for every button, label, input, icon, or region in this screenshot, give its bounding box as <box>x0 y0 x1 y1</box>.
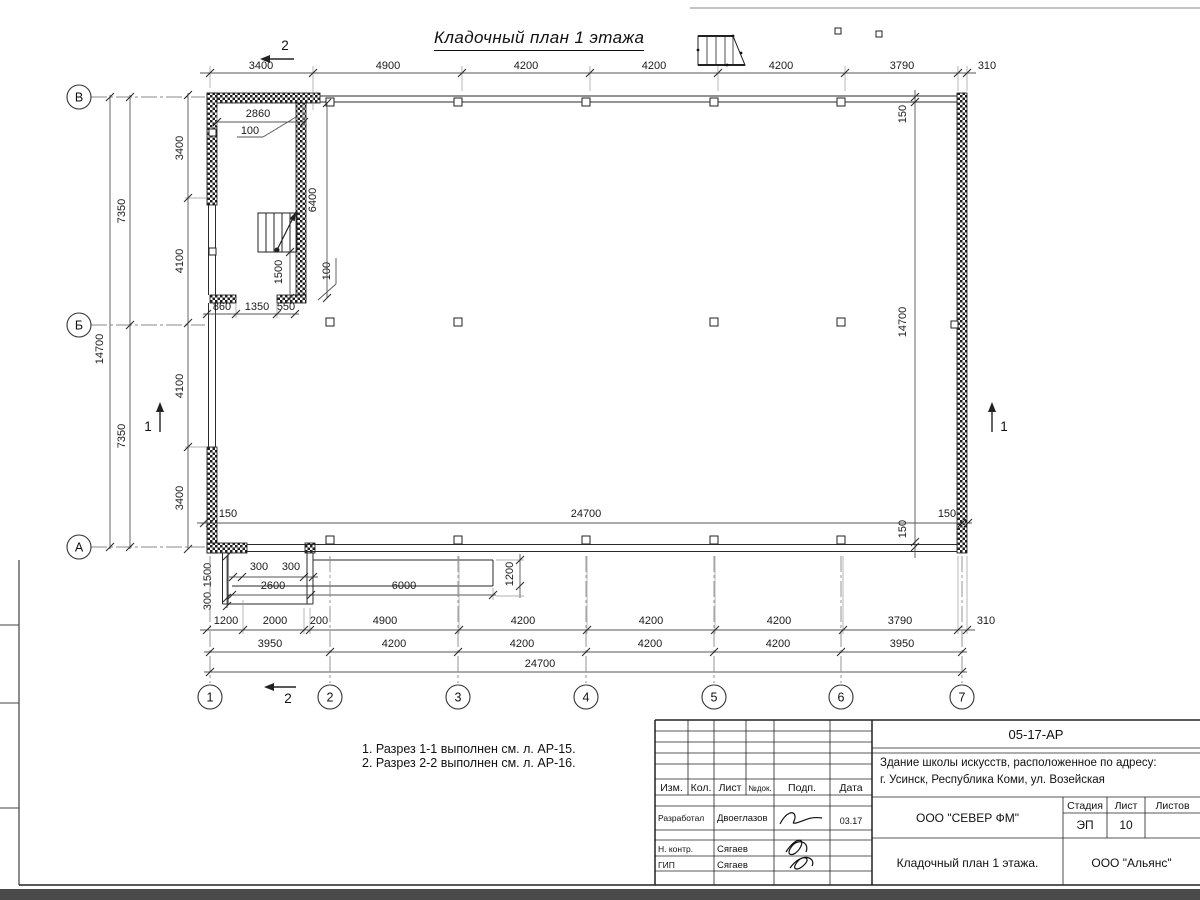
dim-label: 310 <box>978 60 996 72</box>
dim-label: 1500 <box>273 260 285 284</box>
dim-label: 3400 <box>174 486 186 510</box>
scan-edge-strip <box>0 889 1200 900</box>
masonry-walls <box>207 93 967 553</box>
dim-label: 1200 <box>504 562 516 586</box>
dim-label: 1500 <box>202 563 214 587</box>
dim-label: 300 <box>202 592 214 610</box>
dim-label: 7350 <box>116 199 128 223</box>
dim-label: 4200 <box>639 615 663 627</box>
dim-label: 14700 <box>94 334 106 365</box>
dim-label: 4200 <box>382 638 406 650</box>
project-address-line1: Здание школы искусств, расположенное по … <box>880 756 1196 770</box>
axis-label: Б <box>75 319 83 333</box>
sheet-number: 10 <box>1107 816 1145 834</box>
axis-label: 5 <box>711 691 718 705</box>
section-marks <box>156 55 996 691</box>
dim-label: 860 <box>213 301 231 313</box>
organization-2: ООО "Альянс" <box>1063 853 1200 873</box>
name-ncontr: Сягаев <box>717 843 773 855</box>
col-kol: Кол. <box>688 781 714 795</box>
date-developer: 03.17 <box>832 815 870 826</box>
axis-label: 4 <box>583 691 590 705</box>
dim-label: 4200 <box>514 60 538 72</box>
axis-label: 3 <box>455 691 462 705</box>
doc-code: 05-17-АР <box>872 724 1200 744</box>
dim-label: 4200 <box>510 638 534 650</box>
col-data: Дата <box>830 781 872 795</box>
sheets-label: Листов <box>1145 799 1200 812</box>
dim-label: 6400 <box>307 188 319 212</box>
signature-icon <box>780 813 822 869</box>
role-ncontr: Н. контр. <box>658 843 713 855</box>
dim-label: 150 <box>897 520 909 538</box>
drawing-name: Кладочный план 1 этажа. <box>872 853 1063 873</box>
dim-label: 2000 <box>263 615 287 627</box>
dim-label: 3790 <box>888 615 912 627</box>
stage-label: Стадия <box>1063 799 1107 812</box>
plan-title: Кладочный план 1 этажа <box>434 28 644 51</box>
note-line-2: 2. Разрез 2-2 выполнен см. л. АР-16. <box>362 756 576 770</box>
dim-label: 3950 <box>890 638 914 650</box>
canopy-symbol <box>697 35 745 67</box>
col-izm: Изм. <box>655 781 688 795</box>
dim-label: 2600 <box>261 580 285 592</box>
dim-label: 3950 <box>258 638 282 650</box>
section-label: 2 <box>281 38 289 53</box>
notes: 1. Разрез 1-1 выполнен см. л. АР-15. 2. … <box>362 742 576 771</box>
section-label: 2 <box>284 691 292 706</box>
dim-label: 3400 <box>174 136 186 160</box>
axis-label: 2 <box>327 691 334 705</box>
dim-label: 2860 <box>246 108 270 120</box>
drawing-sheet: 3400490042004200420037903102860100640015… <box>0 0 1200 900</box>
name-gip: Сягаев <box>717 859 773 871</box>
dim-label: 100 <box>321 262 333 280</box>
stairs-symbol <box>258 212 297 252</box>
stage-value: ЭП <box>1063 816 1107 834</box>
dim-label: 6000 <box>392 580 416 592</box>
dim-label: 4200 <box>638 638 662 650</box>
dim-label: 100 <box>241 125 259 137</box>
dim-label: 300 <box>282 561 300 573</box>
sheet-label: Лист <box>1107 799 1145 812</box>
thin-walls <box>209 96 958 604</box>
section-label: 1 <box>144 419 152 434</box>
project-address-line2: г. Усинск, Республика Коми, ул. Возейска… <box>880 773 1196 787</box>
axis-label: 1 <box>207 691 214 705</box>
dim-label: 4200 <box>642 60 666 72</box>
dim-label: 4100 <box>174 249 186 273</box>
dim-label: 150 <box>897 105 909 123</box>
axis-label: 7 <box>959 691 966 705</box>
col-ndok: №док. <box>746 781 774 795</box>
name-developer: Двоеглазов <box>717 812 773 824</box>
dim-label: 4900 <box>376 60 400 72</box>
dim-label: 3400 <box>249 60 273 72</box>
dim-label: 4100 <box>174 374 186 398</box>
section-label: 1 <box>1000 419 1008 434</box>
dim-label: 300 <box>250 561 268 573</box>
dim-label: 14700 <box>897 307 909 338</box>
role-gip: ГИП <box>658 859 713 871</box>
dim-label: 24700 <box>571 508 602 520</box>
col-podp: Подп. <box>774 781 830 795</box>
dim-label: 3790 <box>890 60 914 72</box>
col-list: Лист <box>714 781 746 795</box>
dim-label: 4900 <box>373 615 397 627</box>
axis-label: 6 <box>838 691 845 705</box>
note-line-1: 1. Разрез 1-1 выполнен см. л. АР-15. <box>362 742 576 756</box>
dim-label: 4200 <box>769 60 793 72</box>
dim-label: 4200 <box>511 615 535 627</box>
dim-label: 150 <box>938 508 956 520</box>
axis-label: В <box>75 91 83 105</box>
dim-label: 7350 <box>116 424 128 448</box>
organization-1: ООО "СЕВЕР ФМ" <box>872 808 1063 828</box>
dim-label: 4200 <box>766 638 790 650</box>
dimension-lines <box>110 73 976 672</box>
column-markers <box>209 28 958 544</box>
dim-label: 4200 <box>767 615 791 627</box>
dim-label: 200 <box>310 615 328 627</box>
dim-label: 1200 <box>214 615 238 627</box>
dim-label: 310 <box>977 615 995 627</box>
dim-label: 150 <box>219 508 237 520</box>
dim-label: 24700 <box>525 658 556 670</box>
role-developer: Разработал <box>658 812 713 824</box>
dim-label: 1350 <box>245 301 269 313</box>
axis-label: А <box>75 541 84 555</box>
